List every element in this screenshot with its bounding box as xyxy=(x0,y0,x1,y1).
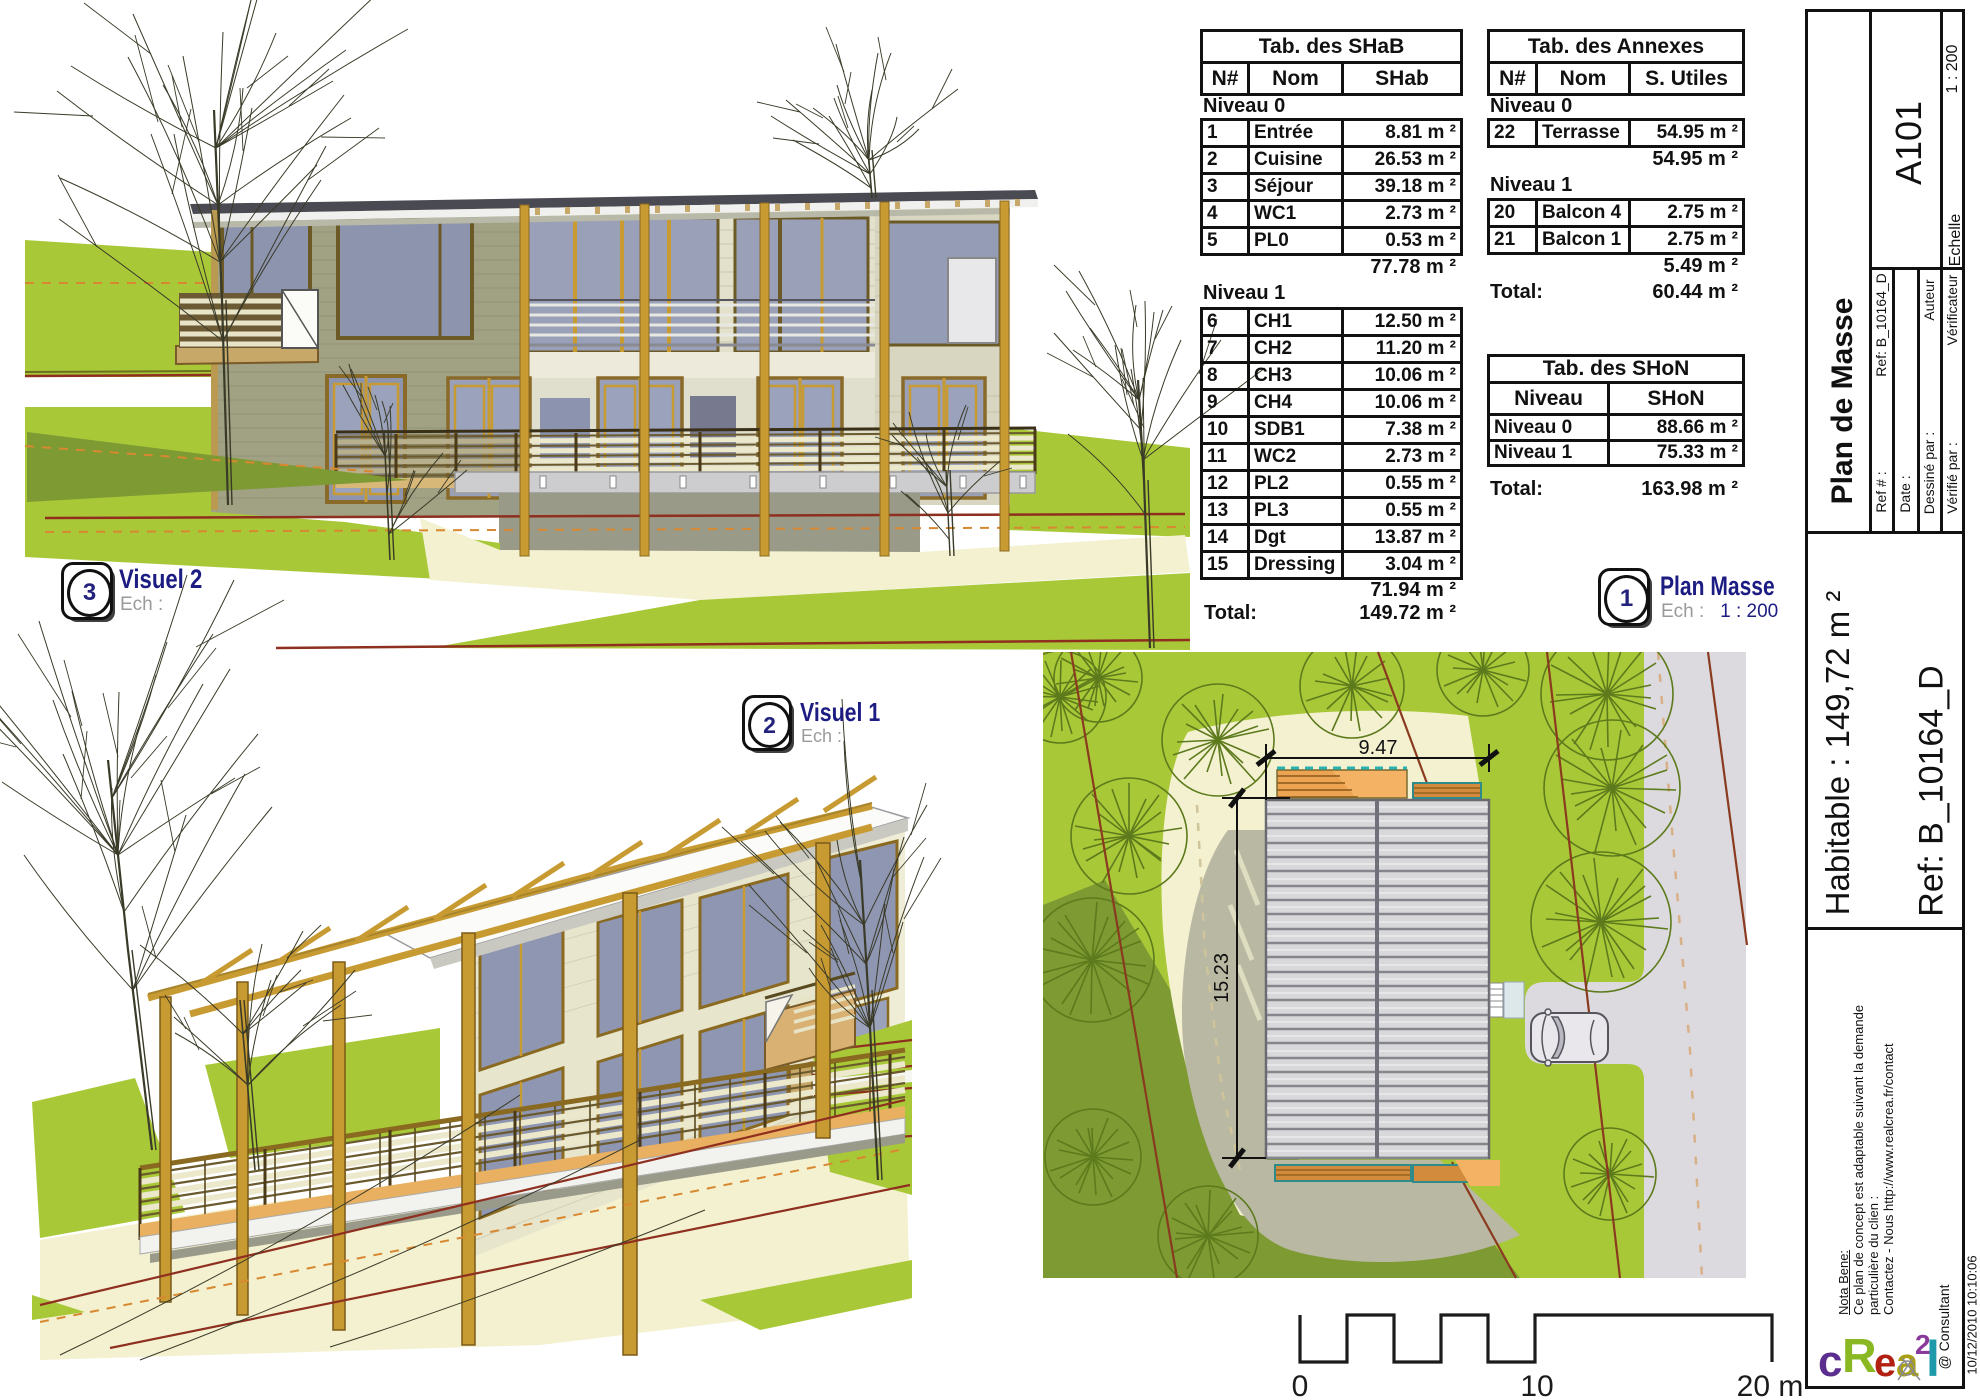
svg-text:l: l xyxy=(1926,1331,1940,1386)
svg-text:c: c xyxy=(1818,1337,1842,1386)
svg-text:e: e xyxy=(1874,1341,1896,1385)
svg-text:10: 10 xyxy=(1520,1370,1553,1400)
svg-text:15.23: 15.23 xyxy=(1211,953,1233,1003)
svg-text:9.47: 9.47 xyxy=(1359,737,1398,759)
svg-text:0: 0 xyxy=(1292,1370,1309,1400)
svg-text:R: R xyxy=(1842,1330,1877,1383)
svg-text:20 m: 20 m xyxy=(1737,1370,1804,1400)
